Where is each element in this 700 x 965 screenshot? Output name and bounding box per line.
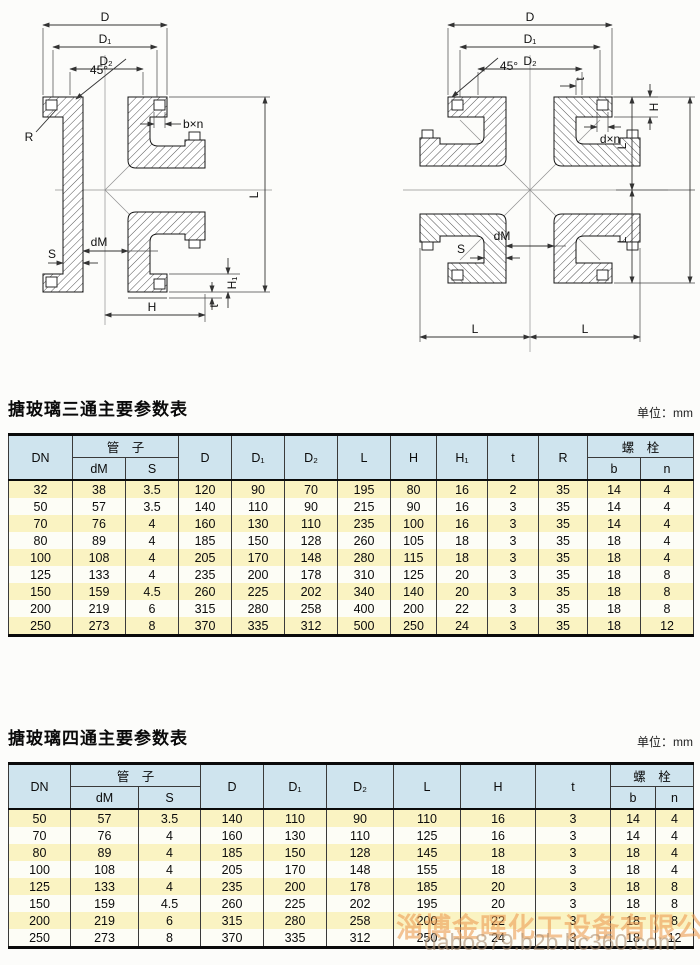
col-header-b: b [611, 787, 656, 810]
table-cell: 4 [126, 532, 179, 549]
table-cell: 260 [179, 583, 232, 600]
table-cell: 280 [264, 912, 327, 929]
table-cell: 110 [327, 827, 394, 844]
table-cell: 178 [285, 566, 338, 583]
dim-label-L-bottom-left: L [472, 322, 479, 336]
dim-label-L-lower: L [615, 236, 629, 243]
table2-unit-note: 单位：mm [637, 733, 693, 750]
table-cell: 18 [611, 878, 656, 895]
table-cell: 258 [327, 912, 394, 929]
col-header-l: L [338, 435, 391, 481]
table-cell: 20 [437, 583, 488, 600]
table-cell: 4 [641, 480, 694, 498]
table-cell: 110 [264, 809, 327, 827]
table-cell: 273 [71, 929, 139, 948]
table-cell: 18 [611, 929, 656, 948]
table-cell: 80 [391, 480, 437, 498]
table-cell: 18 [461, 844, 536, 861]
table-cell: 24 [461, 929, 536, 948]
table-cell: 315 [201, 912, 264, 929]
table-row: 200219631528025840020022335188 [9, 600, 694, 617]
table-cell: 250 [394, 929, 461, 948]
table-cell: 3 [536, 929, 611, 948]
table-cell: 18 [461, 861, 536, 878]
table-cell: 200 [391, 600, 437, 617]
col-header-d1: D₁ [232, 435, 285, 481]
table-cell: 3 [536, 912, 611, 929]
table-cell: 170 [264, 861, 327, 878]
dim-label-H1: H₁ [225, 277, 239, 290]
table-cell: 14 [611, 809, 656, 827]
dim-label-R: R [25, 130, 34, 144]
dim-label-L-bottom-right: L [582, 322, 589, 336]
col-header-dm: dM [71, 787, 139, 810]
dim-label-H: H [148, 300, 157, 314]
bolt-hole [46, 100, 57, 110]
table-cell: 70 [9, 515, 73, 532]
table-cell: 3 [488, 583, 539, 600]
table-cell: 14 [588, 498, 641, 515]
table-cell: 4 [126, 515, 179, 532]
col-header-r: R [539, 435, 588, 481]
table-row: 1001084205170148155183184 [9, 861, 694, 878]
table-cell: 3 [488, 549, 539, 566]
table-cell: 90 [391, 498, 437, 515]
table-cell: 35 [539, 515, 588, 532]
table-row: 7076416013011023510016335144 [9, 515, 694, 532]
table-cell: 70 [285, 480, 338, 498]
col-header-s: S [139, 787, 201, 810]
cross-centerlines [403, 55, 668, 352]
cross-corner-section [420, 97, 506, 166]
bolt-hole [154, 100, 165, 110]
table-cell: 90 [232, 480, 285, 498]
table-cell: 4 [656, 861, 694, 878]
col-header-t: t [488, 435, 539, 481]
col-header-n: n [641, 458, 694, 481]
table-cell: 260 [201, 895, 264, 912]
table-cell: 3 [536, 895, 611, 912]
dim-label-bxn: b×n [183, 117, 203, 131]
table1-head: DN 管 子 D D₁ D₂ L H H₁ t R 螺 栓 dM S b n [9, 435, 694, 481]
table-cell: 3 [488, 600, 539, 617]
col-header-pipe: 管 子 [73, 435, 179, 458]
table-cell: 90 [327, 809, 394, 827]
cross-parameter-section: 搪玻璃四通主要参数表 单位：mm DN 管 子 D D₁ D₂ L H t [8, 728, 693, 949]
dim-label-D2: D₂ [523, 54, 537, 68]
table-cell: 16 [461, 809, 536, 827]
table-row: 8089418515012826010518335184 [9, 532, 694, 549]
table-cell: 57 [71, 809, 139, 827]
col-header-b: b [588, 458, 641, 481]
table-cell: 35 [539, 600, 588, 617]
table-cell: 8 [656, 895, 694, 912]
table-cell: 280 [232, 600, 285, 617]
cross-parameter-table: DN 管 子 D D₁ D₂ L H t 螺 栓 dM S b n 50573. [8, 762, 694, 949]
col-header-d1: D₁ [264, 764, 327, 810]
table-cell: 150 [264, 844, 327, 861]
table-cell: 38 [73, 480, 126, 498]
table-cell: 148 [285, 549, 338, 566]
table-cell: 22 [437, 600, 488, 617]
table-cell: 110 [232, 498, 285, 515]
table-cell: 18 [611, 912, 656, 929]
table-cell: 4 [641, 549, 694, 566]
table-cell: 219 [71, 912, 139, 929]
tee-branch-lower-section [128, 212, 205, 292]
dim-label-angle: 45° [90, 63, 108, 77]
table-cell: 20 [461, 878, 536, 895]
table-cell: 20 [461, 895, 536, 912]
cross-corner-section [554, 214, 640, 283]
table-cell: 128 [285, 532, 338, 549]
table-cell: 140 [179, 498, 232, 515]
table-cell: 100 [9, 549, 73, 566]
dim-label-S: S [48, 247, 56, 261]
table-cell: 108 [71, 861, 139, 878]
col-header-n: n [656, 787, 694, 810]
table-cell: 3 [488, 566, 539, 583]
table-cell: 145 [394, 844, 461, 861]
table-cell: 370 [201, 929, 264, 948]
table-cell: 18 [611, 844, 656, 861]
col-header-l: L [394, 764, 461, 810]
dim-label-L: L [247, 191, 261, 198]
table-cell: 185 [179, 532, 232, 549]
dim-label-H: H [647, 103, 661, 112]
table-cell: 35 [539, 617, 588, 636]
col-header-h1: H₁ [437, 435, 488, 481]
table-cell: 202 [327, 895, 394, 912]
table2-title: 搪玻璃四通主要参数表 [8, 728, 188, 750]
table-cell: 35 [539, 498, 588, 515]
table-cell: 133 [71, 878, 139, 895]
section-header: 搪玻璃四通主要参数表 单位：mm [8, 728, 693, 750]
dim-label-t: t [207, 304, 221, 308]
table-cell: 70 [9, 827, 71, 844]
table-cell: 35 [539, 532, 588, 549]
table-cell: 16 [461, 827, 536, 844]
table-cell: 105 [391, 532, 437, 549]
table-cell: 195 [338, 480, 391, 498]
table-cell: 4.5 [139, 895, 201, 912]
table-cell: 235 [201, 878, 264, 895]
technical-drawings: D D₁ D₂ 45° R b×n L dM S H H₁ t [0, 0, 700, 370]
table-cell: 18 [588, 617, 641, 636]
table-cell: 8 [139, 929, 201, 948]
table-cell: 205 [201, 861, 264, 878]
table-cell: 4 [656, 827, 694, 844]
table-cell: 125 [9, 878, 71, 895]
dim-label-t: t [573, 77, 587, 81]
table-cell: 18 [437, 549, 488, 566]
table-cell: 18 [588, 566, 641, 583]
table-cell: 340 [338, 583, 391, 600]
table-cell: 125 [394, 827, 461, 844]
col-header-dn: DN [9, 435, 73, 481]
table-cell: 215 [338, 498, 391, 515]
table-cell: 335 [232, 617, 285, 636]
table-cell: 3.5 [139, 809, 201, 827]
table-cell: 14 [611, 827, 656, 844]
table-cell: 110 [285, 515, 338, 532]
table-cell: 12 [641, 617, 694, 636]
col-header-d2: D₂ [285, 435, 338, 481]
col-header-t: t [536, 764, 611, 810]
table-cell: 140 [391, 583, 437, 600]
col-header-dm: dM [73, 458, 126, 481]
table-cell: 225 [264, 895, 327, 912]
table-cell: 57 [73, 498, 126, 515]
table-cell: 4 [656, 844, 694, 861]
table-cell: 195 [394, 895, 461, 912]
table-cell: 4 [126, 549, 179, 566]
table-row: 100108420517014828011518335184 [9, 549, 694, 566]
table-cell: 200 [264, 878, 327, 895]
table-cell: 4 [641, 498, 694, 515]
table-cell: 130 [264, 827, 327, 844]
table-cell: 100 [9, 861, 71, 878]
table-cell: 130 [232, 515, 285, 532]
table-row: 1251334235200178185203188 [9, 878, 694, 895]
table-cell: 16 [437, 480, 488, 498]
table-cell: 76 [73, 515, 126, 532]
table-cell: 225 [232, 583, 285, 600]
table-cell: 18 [588, 549, 641, 566]
bolt-hole [189, 240, 200, 248]
table-cell: 3.5 [126, 480, 179, 498]
table-cell: 250 [9, 617, 73, 636]
table-cell: 185 [201, 844, 264, 861]
dim-label-dM: dM [494, 229, 511, 243]
dim-label-D1: D₁ [99, 32, 112, 46]
dim-label-angle: 45° [500, 59, 518, 73]
col-header-d: D [179, 435, 232, 481]
table-cell: 3 [536, 878, 611, 895]
table-cell: 18 [588, 583, 641, 600]
table-cell: 370 [179, 617, 232, 636]
table-cell: 3 [488, 515, 539, 532]
table-row: 125133423520017831012520335188 [9, 566, 694, 583]
bolt-hole [452, 100, 463, 110]
table-cell: 35 [539, 583, 588, 600]
table-cell: 185 [394, 878, 461, 895]
table-cell: 3 [488, 498, 539, 515]
table-cell: 22 [461, 912, 536, 929]
table-cell: 6 [139, 912, 201, 929]
table-cell: 6 [126, 600, 179, 617]
tee-parameter-table: DN 管 子 D D₁ D₂ L H H₁ t R 螺 栓 dM S b n [8, 433, 694, 637]
table-cell: 335 [264, 929, 327, 948]
table-row: 70764160130110125163144 [9, 827, 694, 844]
dim-label-D1: D₁ [524, 32, 537, 46]
dim-label-L-upper: L [615, 142, 629, 149]
table-cell: 18 [437, 532, 488, 549]
col-header-pipe: 管 子 [71, 764, 201, 787]
table-row: 80894185150128145183184 [9, 844, 694, 861]
table-cell: 155 [394, 861, 461, 878]
col-header-h: H [391, 435, 437, 481]
table-cell: 312 [327, 929, 394, 948]
table-row: 50573.5140110902159016335144 [9, 498, 694, 515]
table-cell: 133 [73, 566, 126, 583]
table-cell: 89 [73, 532, 126, 549]
table-cell: 125 [9, 566, 73, 583]
table-cell: 80 [9, 844, 71, 861]
table-cell: 14 [588, 480, 641, 498]
table-cell: 89 [71, 844, 139, 861]
table-cell: 4.5 [126, 583, 179, 600]
table-cell: 18 [611, 861, 656, 878]
bolt-hole [422, 130, 433, 138]
table-cell: 4 [656, 809, 694, 827]
table-cell: 219 [73, 600, 126, 617]
table-cell: 3 [536, 827, 611, 844]
table-cell: 148 [327, 861, 394, 878]
table-cell: 3.5 [126, 498, 179, 515]
table-cell: 32 [9, 480, 73, 498]
table-cell: 4 [139, 827, 201, 844]
table-cell: 4 [139, 844, 201, 861]
table-cell: 8 [126, 617, 179, 636]
table-cell: 150 [232, 532, 285, 549]
table-cell: 250 [9, 929, 71, 948]
table-row: 50573.514011090110163144 [9, 809, 694, 827]
col-header-bolt: 螺 栓 [588, 435, 694, 458]
table-cell: 200 [9, 912, 71, 929]
table-cell: 50 [9, 498, 73, 515]
table-cell: 12 [656, 929, 694, 948]
table-cell: 16 [437, 498, 488, 515]
table-row: 25027383703353122502431812 [9, 929, 694, 948]
section-header: 搪玻璃三通主要参数表 单位：mm [8, 399, 693, 421]
table-cell: 110 [394, 809, 461, 827]
table-cell: 3 [536, 809, 611, 827]
table-cell: 200 [232, 566, 285, 583]
table-cell: 8 [641, 583, 694, 600]
col-header-bolt: 螺 栓 [611, 764, 694, 787]
table-cell: 159 [73, 583, 126, 600]
table-cell: 280 [338, 549, 391, 566]
table-cell: 315 [179, 600, 232, 617]
col-header-d2: D₂ [327, 764, 394, 810]
table-cell: 3 [488, 617, 539, 636]
table-cell: 24 [437, 617, 488, 636]
col-header-d: D [201, 764, 264, 810]
table-cell: 14 [588, 515, 641, 532]
table-cell: 160 [179, 515, 232, 532]
table-cell: 4 [139, 878, 201, 895]
table-cell: 108 [73, 549, 126, 566]
table-cell: 312 [285, 617, 338, 636]
table-cell: 250 [391, 617, 437, 636]
tee-parameter-section: 搪玻璃三通主要参数表 单位：mm DN 管 子 D D₁ D₂ L H [8, 399, 693, 637]
dim-label-dM: dM [91, 235, 108, 249]
table-cell: 205 [179, 549, 232, 566]
table-cell: 260 [338, 532, 391, 549]
dim-label-D: D [526, 10, 535, 24]
bolt-hole [46, 277, 57, 287]
tee-section-drawing: D D₁ D₂ 45° R b×n L dM S H H₁ t [25, 10, 272, 325]
table-cell: 125 [391, 566, 437, 583]
table-cell: 80 [9, 532, 73, 549]
table1-title: 搪玻璃三通主要参数表 [8, 399, 188, 421]
table-cell: 115 [391, 549, 437, 566]
table-cell: 3 [536, 844, 611, 861]
table-cell: 50 [9, 809, 71, 827]
table-cell: 128 [327, 844, 394, 861]
table2-head: DN 管 子 D D₁ D₂ L H t 螺 栓 dM S b n [9, 764, 694, 810]
table-cell: 159 [71, 895, 139, 912]
dim-label-D: D [101, 10, 110, 24]
table-cell: 100 [391, 515, 437, 532]
table-cell: 235 [179, 566, 232, 583]
table-cell: 4 [641, 532, 694, 549]
table-cell: 4 [126, 566, 179, 583]
table-cell: 8 [656, 912, 694, 929]
table-cell: 8 [641, 566, 694, 583]
table-cell: 20 [437, 566, 488, 583]
table-cell: 500 [338, 617, 391, 636]
table-row: 1501594.526022520234014020335188 [9, 583, 694, 600]
table-cell: 140 [201, 809, 264, 827]
table-row: 32383.512090701958016235144 [9, 480, 694, 498]
document-page: D D₁ D₂ 45° R b×n L dM S H H₁ t [0, 0, 700, 965]
col-header-dn: DN [9, 764, 71, 810]
table-cell: 160 [201, 827, 264, 844]
table-cell: 200 [9, 600, 73, 617]
table-row: 2502738370335312500250243351812 [9, 617, 694, 636]
table-cell: 76 [71, 827, 139, 844]
table-cell: 235 [338, 515, 391, 532]
table-cell: 3 [488, 532, 539, 549]
col-header-h: H [461, 764, 536, 810]
table-cell: 273 [73, 617, 126, 636]
table-cell: 120 [179, 480, 232, 498]
table-cell: 90 [285, 498, 338, 515]
table-cell: 35 [539, 566, 588, 583]
table-cell: 16 [437, 515, 488, 532]
dim-label-S: S [457, 242, 465, 256]
table-cell: 8 [641, 600, 694, 617]
cross-dimension-lines [420, 25, 695, 342]
table-row: 1501594.5260225202195203188 [9, 895, 694, 912]
table-cell: 200 [394, 912, 461, 929]
table-cell: 4 [139, 861, 201, 878]
table-cell: 202 [285, 583, 338, 600]
cross-section-drawing: D D₁ D₂ 45° t H d×n L L dM S L L [403, 10, 695, 352]
table2-body: 50573.5140110901101631447076416013011012… [9, 809, 694, 948]
table1-unit-note: 单位：mm [637, 404, 693, 421]
table-cell: 310 [338, 566, 391, 583]
table1-body: 32383.51209070195801623514450573.5140110… [9, 480, 694, 636]
table-cell: 170 [232, 549, 285, 566]
bolt-hole [154, 279, 165, 289]
table-cell: 400 [338, 600, 391, 617]
table-cell: 150 [9, 583, 73, 600]
col-header-s: S [126, 458, 179, 481]
bolt-hole [189, 132, 200, 140]
table-cell: 4 [641, 515, 694, 532]
table-cell: 178 [327, 878, 394, 895]
table-row: 2002196315280258200223188 [9, 912, 694, 929]
table-cell: 35 [539, 480, 588, 498]
table-cell: 18 [588, 600, 641, 617]
table-cell: 3 [536, 861, 611, 878]
table-cell: 18 [611, 895, 656, 912]
table-cell: 258 [285, 600, 338, 617]
table-cell: 8 [656, 878, 694, 895]
